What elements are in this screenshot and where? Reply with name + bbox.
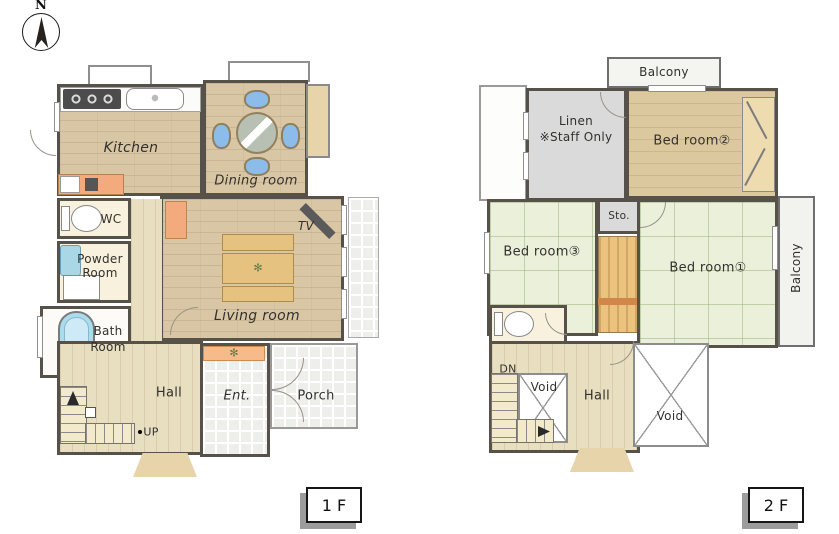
window [37, 316, 43, 358]
living-cabinet [165, 201, 187, 239]
window [772, 226, 778, 270]
bedroom1-label: Bed room① [669, 261, 746, 276]
floor1-badge-label: 1 F [322, 496, 346, 515]
compass-needle-icon [31, 17, 52, 48]
toilet-tank [494, 312, 503, 336]
entrance-label: Ent. [224, 389, 251, 404]
window [523, 152, 529, 180]
stairs-newel [85, 407, 96, 418]
dining-label: Dining room [214, 174, 297, 189]
plant-icon: ✻ [253, 262, 262, 275]
bay-window-seat [306, 84, 330, 158]
bath-label-line2: Room [90, 340, 125, 354]
living-table-icon [222, 286, 294, 302]
terrace [348, 197, 379, 338]
window [341, 205, 347, 235]
dining-chair-icon [281, 123, 300, 149]
hall-corridor [131, 199, 162, 342]
door-arc [30, 130, 56, 156]
wc-label: WC [101, 212, 122, 226]
closet-wood-strip [598, 236, 639, 333]
up-label: UP [143, 426, 158, 439]
compass-icon [22, 13, 60, 51]
floor-plan-canvas: N ✻ ✻ [0, 0, 839, 534]
powder-label-line2: Room [82, 266, 117, 280]
window [54, 102, 60, 132]
window [484, 232, 490, 274]
linen-label-line1: Linen [559, 114, 593, 128]
bedroom2-label: Bed room② [653, 134, 730, 149]
bay-window-kitchen [88, 65, 152, 86]
bath-label-line1: Bath [93, 324, 122, 338]
balcony-top-label: Balcony [639, 65, 689, 79]
stove-icon [63, 89, 121, 109]
window [341, 247, 347, 277]
floor2-badge: 2 F [748, 487, 804, 523]
powder-label-line1: Powder [77, 252, 123, 266]
linen-label-line2: ※Staff Only [540, 130, 613, 144]
dn-label: DN [499, 363, 516, 376]
living-table-icon [222, 234, 294, 251]
stairs-up-run [85, 423, 135, 444]
void-left-label: Void [531, 380, 558, 394]
hall-label: Hall [156, 386, 182, 401]
roof-outline [479, 85, 527, 201]
porch-label: Porch [297, 389, 334, 404]
floor2-badge-label: 2 F [764, 496, 788, 515]
tv-label: TV [298, 219, 314, 233]
bay-window-hall2 [570, 448, 634, 472]
window [523, 112, 529, 140]
floor1-badge: 1 F [306, 487, 362, 523]
compass-north-label: N [22, 0, 60, 13]
dining-chair-icon [212, 123, 231, 149]
void-right [633, 343, 709, 447]
storage-label: Sto. [608, 210, 630, 222]
balcony-right-label: Balcony [789, 243, 803, 293]
plant-icon: ✻ [229, 347, 238, 360]
toilet-icon [71, 205, 102, 232]
window [648, 85, 706, 92]
up-dot [138, 430, 142, 434]
void-right-label: Void [657, 409, 684, 423]
kitchen-cabinet-sink [60, 176, 80, 193]
closet-divider [598, 298, 639, 305]
sink-icon [126, 88, 184, 110]
toilet-tank [61, 206, 70, 231]
dining-chair-icon [244, 90, 270, 109]
kitchen-label: Kitchen [104, 140, 159, 156]
hall2-label: Hall [584, 389, 610, 404]
kitchen-appliance-icon [85, 178, 98, 191]
living-label: Living room [214, 308, 300, 324]
bedroom3-label: Bed room③ [503, 245, 580, 260]
window [341, 289, 347, 319]
dining-table-icon [236, 112, 278, 154]
toilet-icon [504, 311, 534, 337]
bay-window-hall [133, 453, 197, 477]
stairs-down [491, 373, 518, 443]
bay-window-dining [228, 61, 310, 82]
